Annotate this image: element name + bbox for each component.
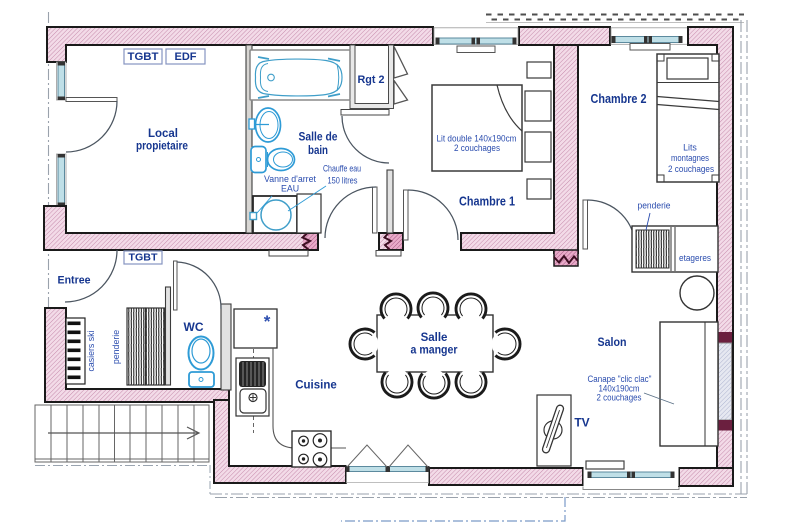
svg-text:EAU: EAU bbox=[281, 184, 299, 194]
svg-text:TGBT: TGBT bbox=[128, 51, 159, 63]
svg-text:casiers ski: casiers ski bbox=[86, 330, 96, 371]
svg-text:TGBT: TGBT bbox=[129, 252, 159, 264]
svg-text:penderie: penderie bbox=[638, 201, 671, 211]
svg-text:TV: TV bbox=[574, 416, 589, 430]
svg-text:a manger: a manger bbox=[411, 345, 458, 357]
svg-text:bain: bain bbox=[308, 143, 328, 157]
svg-text:Entree: Entree bbox=[58, 275, 91, 287]
svg-text:montagnes: montagnes bbox=[671, 153, 710, 163]
svg-text:Chambre 2: Chambre 2 bbox=[591, 92, 647, 106]
svg-text:2 couchages: 2 couchages bbox=[668, 164, 715, 174]
svg-text:Rgt 2: Rgt 2 bbox=[358, 74, 385, 86]
svg-text:Lit double 140x190cm: Lit double 140x190cm bbox=[437, 134, 517, 144]
svg-text:penderie: penderie bbox=[111, 330, 121, 364]
svg-text:*: * bbox=[264, 312, 271, 331]
svg-text:Salon: Salon bbox=[598, 337, 627, 349]
svg-text:propietaire: propietaire bbox=[136, 141, 188, 153]
svg-text:150 litres: 150 litres bbox=[328, 176, 358, 186]
svg-text:WC: WC bbox=[184, 320, 204, 334]
svg-text:Chauffe eau: Chauffe eau bbox=[323, 164, 361, 174]
svg-text:2 couchages: 2 couchages bbox=[597, 393, 643, 403]
svg-text:Chambre 1: Chambre 1 bbox=[459, 195, 515, 209]
svg-text:Vanne d'arret: Vanne d'arret bbox=[264, 174, 316, 184]
svg-text:etageres: etageres bbox=[679, 253, 712, 263]
svg-text:Lits: Lits bbox=[683, 143, 697, 153]
svg-text:Salle de: Salle de bbox=[299, 130, 338, 144]
svg-text:EDF: EDF bbox=[175, 51, 197, 63]
svg-text:2 couchages: 2 couchages bbox=[454, 143, 501, 153]
svg-text:Local: Local bbox=[148, 128, 178, 140]
svg-text:Salle: Salle bbox=[421, 332, 448, 344]
svg-text:Cuisine: Cuisine bbox=[295, 380, 337, 392]
svg-text:Canape "clic clac": Canape "clic clac" bbox=[588, 374, 652, 384]
